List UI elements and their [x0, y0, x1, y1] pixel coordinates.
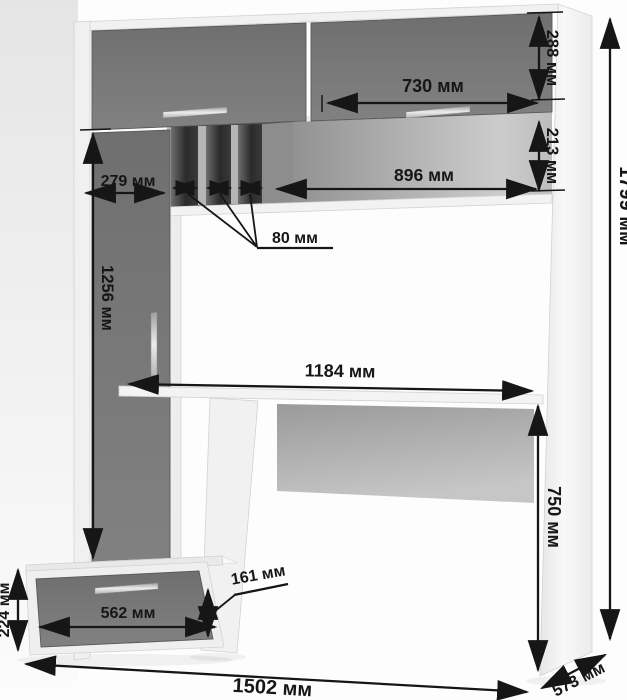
- dim-288-label: 288 мм: [543, 30, 561, 87]
- tall-door-handle: [151, 312, 157, 376]
- dim-1256-label: 1256 мм: [98, 265, 116, 331]
- pigeonhole-divider-1: [198, 126, 206, 205]
- niche-back-panel: [293, 112, 552, 204]
- dim-1799-label: 1799 мм: [615, 166, 627, 246]
- dim-730-label: 730 мм: [402, 76, 464, 96]
- dim-213-label: 213 мм: [543, 128, 561, 185]
- dim-896-label: 896 мм: [394, 165, 454, 185]
- pigeonhole-slot-1: [171, 126, 198, 207]
- tall-left-door: [92, 130, 170, 567]
- pigeonhole-slot-2: [206, 125, 231, 205]
- dim-562-label: 562 мм: [101, 605, 156, 622]
- dim-1256-tick-top: [80, 129, 111, 130]
- dim-1184-label: 1184 мм: [305, 360, 376, 381]
- dim-1502-label: 1502 мм: [232, 675, 313, 700]
- dim-80-label: 80 мм: [272, 230, 318, 247]
- dim-288-tick-bottom: [531, 99, 565, 100]
- pigeonhole-right-block: [262, 122, 293, 204]
- furniture-diagram: 288 мм 730 мм 213 мм 896 мм 279 мм: [0, 0, 627, 700]
- dim-750-label: 750 мм: [544, 486, 564, 548]
- dim-224-label: 224 мм: [0, 583, 13, 638]
- under-desk-back-panel: [277, 404, 534, 503]
- pigeonhole-divider-2: [231, 125, 238, 204]
- pigeonhole-slot-3: [238, 124, 262, 204]
- top-right-door: [311, 13, 552, 121]
- floor-shadow-middle: [190, 653, 246, 661]
- dim-288-tick-top: [527, 12, 563, 13]
- diagram-canvas: 288 мм 730 мм 213 мм 896 мм 279 мм: [0, 0, 627, 700]
- dim-213-tick: [531, 190, 565, 191]
- dim-279-label: 279 мм: [101, 173, 156, 190]
